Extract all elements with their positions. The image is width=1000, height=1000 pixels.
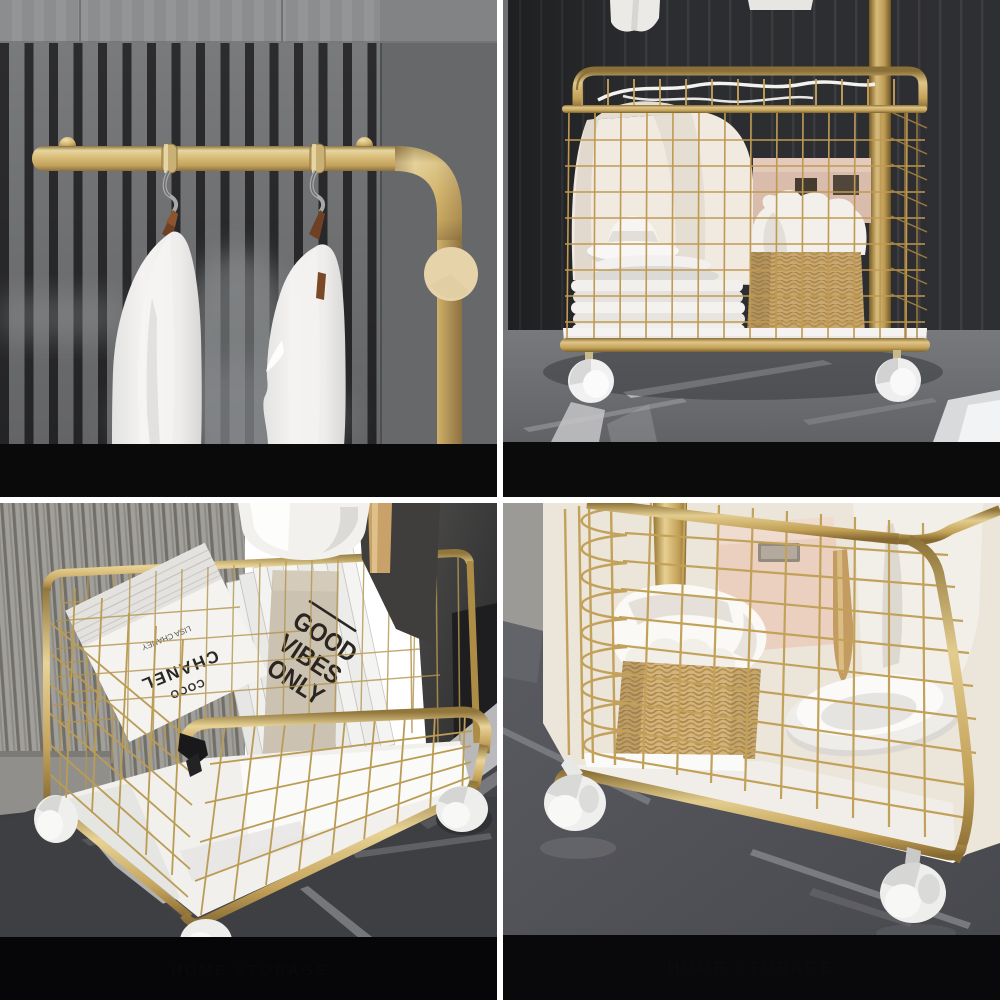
svg-text:HOME STORAGE: HOME STORAGE xyxy=(668,960,834,977)
svg-text:HOME STORAGE: HOME STORAGE xyxy=(171,962,329,979)
